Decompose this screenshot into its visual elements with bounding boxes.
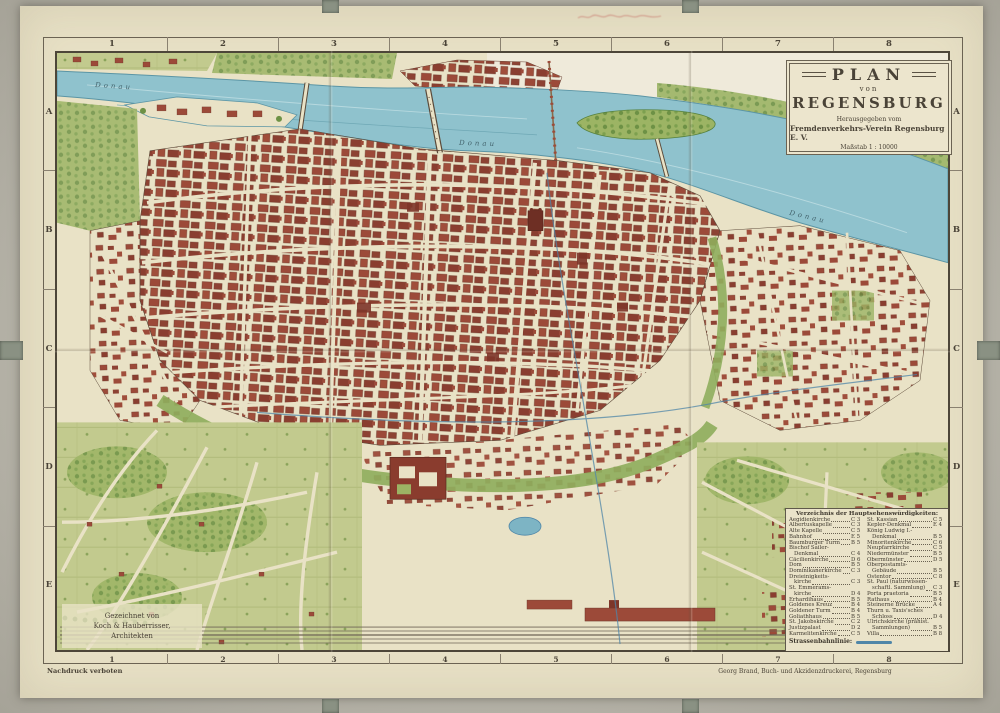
grid-column-label: 2 bbox=[167, 654, 278, 664]
legend-column-1: Aegidienkirche C 3 Albertuskapelle C 3 A… bbox=[789, 518, 863, 638]
cartographer-credit: Gezeichnet von Koch & Hauberrisser, Arch… bbox=[62, 604, 202, 648]
title-block-inner: PLAN von REGENSBURG Herausgegeben vom Fr… bbox=[789, 63, 949, 152]
grid-column-label: 4 bbox=[389, 654, 500, 664]
dotted-leader bbox=[910, 556, 932, 557]
grid-row-label: E bbox=[43, 526, 55, 644]
legend-box: Verzeichnis der Hauptsehenswürdigkeiten:… bbox=[785, 508, 948, 651]
dotted-leader bbox=[912, 544, 932, 545]
grid-column-label: 6 bbox=[611, 654, 722, 664]
grid-band-left: ABCDE bbox=[43, 53, 55, 644]
handwritten-ink-mark bbox=[575, 8, 665, 24]
grid-column-label: 3 bbox=[278, 37, 389, 51]
dotted-leader bbox=[838, 635, 850, 636]
grid-row-label: B bbox=[43, 170, 55, 288]
grid-column-label: 7 bbox=[722, 37, 833, 51]
dotted-leader bbox=[832, 613, 850, 614]
linen-tab-top-right bbox=[682, 0, 699, 13]
dotted-leader bbox=[835, 624, 850, 625]
dotted-leader bbox=[841, 544, 850, 545]
linen-tab-top-left bbox=[322, 0, 339, 13]
dotted-leader bbox=[829, 561, 850, 562]
linen-tab-left bbox=[0, 341, 23, 360]
grid-column-label: 8 bbox=[833, 654, 944, 664]
linen-tab-bottom-left bbox=[322, 699, 339, 713]
fold-crease-horizontal bbox=[55, 348, 950, 353]
dotted-leader bbox=[823, 533, 850, 534]
title-city: REGENSBURG bbox=[792, 94, 946, 112]
grid-row-label: C bbox=[950, 289, 963, 407]
station-building bbox=[585, 608, 715, 621]
dotted-leader bbox=[910, 550, 932, 551]
photo-of-folded-map: { "map": { "title_block": { "title": "PL… bbox=[0, 0, 1000, 713]
legend-entry: Villa B 8 bbox=[867, 632, 945, 638]
tram-line-swatch bbox=[856, 641, 892, 644]
dotted-leader bbox=[910, 596, 932, 597]
map-sheet: 12345678 12345678 ABCDE ABCDE bbox=[20, 6, 983, 698]
tram-label: Strassenbahnlinie: bbox=[789, 639, 852, 645]
grid-row-label: C bbox=[43, 289, 55, 407]
legend-column-2: St. Kassian C 5 Kepler-Denkmal E 4 König… bbox=[867, 518, 945, 638]
title-rule-left bbox=[802, 72, 826, 77]
printer-imprint: Georg Brand, Buch- und Akzidenzdruckerei… bbox=[660, 668, 950, 675]
dotted-leader bbox=[912, 527, 932, 528]
grid-column-label: 5 bbox=[500, 654, 611, 664]
grid-row-label: D bbox=[43, 407, 55, 525]
dotted-leader bbox=[831, 521, 850, 522]
dotted-leader bbox=[880, 635, 932, 636]
pond bbox=[509, 517, 541, 535]
grid-column-label: 5 bbox=[500, 37, 611, 51]
legend-entry: Karmelitenkirche C 5 bbox=[789, 632, 863, 638]
grid-row-label: D bbox=[950, 407, 963, 525]
grid-column-label: 1 bbox=[57, 37, 167, 51]
publisher-line1: Herausgegeben vom bbox=[837, 116, 902, 123]
linen-tab-bottom-right bbox=[682, 699, 699, 713]
dom-cathedral bbox=[528, 208, 543, 231]
prebrunn-green bbox=[57, 101, 140, 231]
grid-column-label: 2 bbox=[167, 37, 278, 51]
grid-column-label: 1 bbox=[57, 654, 167, 664]
publisher-line2: Fremdenverkehrs-Verein Regensburg E. V. bbox=[790, 124, 948, 142]
dotted-leader bbox=[926, 590, 932, 591]
river-label-center: Donau bbox=[458, 139, 497, 148]
dotted-leader bbox=[897, 573, 932, 574]
copyright-note: Nachdruck verboten bbox=[47, 667, 122, 675]
credit-line3: Architekten bbox=[111, 631, 153, 641]
title-rule-right bbox=[912, 72, 936, 77]
title-von: von bbox=[860, 85, 879, 93]
dotted-leader bbox=[833, 527, 850, 528]
grid-column-label: 4 bbox=[389, 37, 500, 51]
thurn-taxis-schloss bbox=[390, 457, 446, 499]
grid-column-label: 7 bbox=[722, 654, 833, 664]
grid-row-label: A bbox=[43, 53, 55, 170]
grid-row-label: B bbox=[950, 170, 963, 288]
legend-heading: Verzeichnis der Hauptsehenswürdigkeiten: bbox=[789, 511, 945, 517]
dotted-leader bbox=[911, 630, 932, 631]
title-block: PLAN von REGENSBURG Herausgegeben vom Fr… bbox=[786, 60, 952, 155]
grid-column-label: 6 bbox=[611, 37, 722, 51]
grid-column-label: 3 bbox=[278, 654, 389, 664]
dotted-leader bbox=[833, 607, 850, 608]
dotted-leader bbox=[843, 573, 850, 574]
linen-tab-right bbox=[977, 341, 1000, 360]
grid-column-label: 8 bbox=[833, 37, 944, 51]
dotted-leader bbox=[904, 561, 932, 562]
credit-line2: Koch & Hauberrisser, bbox=[94, 621, 171, 631]
scale-note: Maßstab 1 : 10000 bbox=[840, 144, 897, 151]
grid-band-bottom: 12345678 bbox=[57, 654, 944, 664]
island-unterer-woehrd bbox=[577, 110, 715, 139]
tram-legend-row: Strassenbahnlinie: bbox=[789, 639, 945, 645]
map-title: PLAN bbox=[832, 65, 906, 84]
grid-row-label: E bbox=[950, 526, 963, 644]
grid-band-top: 12345678 bbox=[57, 37, 944, 51]
credit-line1: Gezeichnet von bbox=[105, 611, 160, 621]
